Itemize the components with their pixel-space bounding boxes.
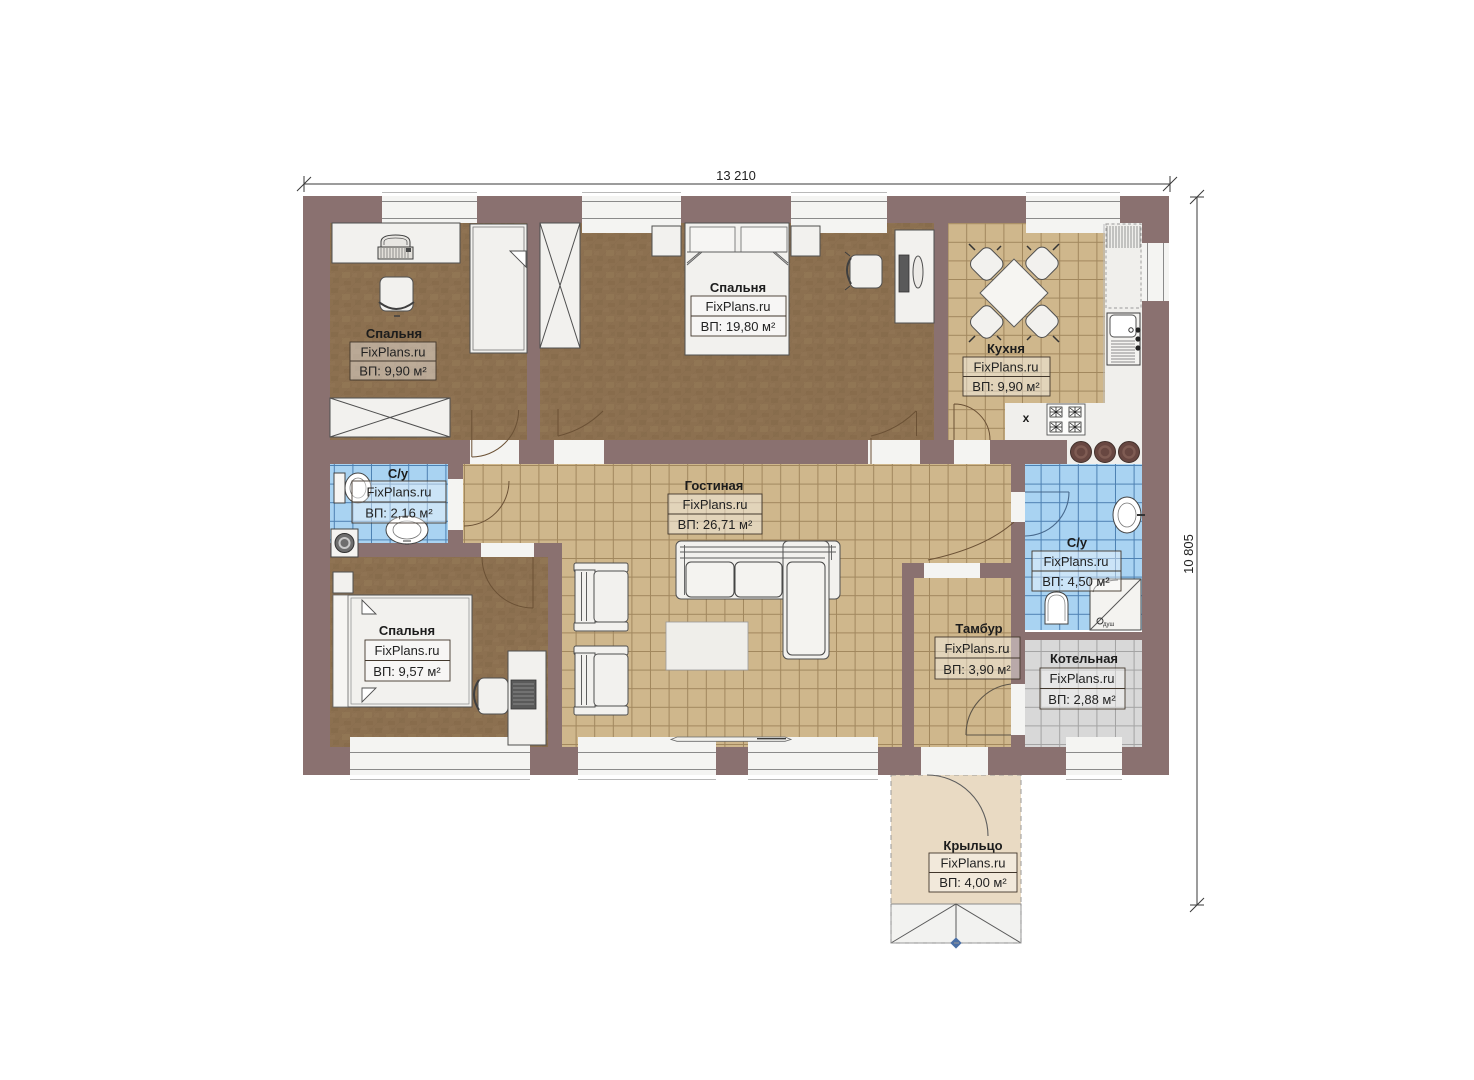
svg-text:FixPlans.ru: FixPlans.ru	[374, 643, 439, 658]
svg-text:ВП: 3,90 м²: ВП: 3,90 м²	[943, 662, 1011, 677]
svg-text:ВП: 19,80 м²: ВП: 19,80 м²	[701, 319, 776, 334]
svg-text:10 805: 10 805	[1181, 534, 1196, 574]
svg-text:душ: душ	[1103, 622, 1115, 628]
svg-text:С/у: С/у	[388, 466, 409, 481]
svg-text:Кухня: Кухня	[987, 341, 1025, 356]
svg-text:Спальня: Спальня	[366, 326, 422, 341]
svg-text:FixPlans.ru: FixPlans.ru	[360, 345, 425, 360]
svg-text:С/у: С/у	[1067, 535, 1088, 550]
svg-text:Котельная: Котельная	[1050, 651, 1118, 666]
svg-text:FixPlans.ru: FixPlans.ru	[1043, 554, 1108, 569]
svg-text:ВП: 9,57 м²: ВП: 9,57 м²	[373, 664, 441, 679]
svg-text:FixPlans.ru: FixPlans.ru	[366, 485, 431, 500]
svg-text:ВП: 2,16 м²: ВП: 2,16 м²	[365, 506, 433, 521]
svg-text:FixPlans.ru: FixPlans.ru	[1049, 671, 1114, 686]
svg-text:ВП: 4,00 м²: ВП: 4,00 м²	[939, 875, 1007, 890]
svg-text:Гостиная: Гостиная	[685, 478, 744, 493]
svg-text:FixPlans.ru: FixPlans.ru	[940, 856, 1005, 871]
svg-text:ВП: 9,90 м²: ВП: 9,90 м²	[972, 379, 1040, 394]
svg-text:FixPlans.ru: FixPlans.ru	[973, 360, 1038, 375]
svg-text:х: х	[1023, 411, 1030, 425]
svg-text:FixPlans.ru: FixPlans.ru	[682, 497, 747, 512]
svg-text:FixPlans.ru: FixPlans.ru	[705, 299, 770, 314]
svg-text:ВП: 2,88 м²: ВП: 2,88 м²	[1048, 692, 1116, 707]
svg-text:Тамбур: Тамбур	[955, 621, 1002, 636]
svg-text:Крыльцо: Крыльцо	[943, 838, 1002, 853]
svg-text:ВП: 9,90 м²: ВП: 9,90 м²	[359, 364, 427, 379]
svg-text:Спальня: Спальня	[710, 280, 766, 295]
svg-text:ВП: 4,50 м²: ВП: 4,50 м²	[1042, 574, 1110, 589]
svg-text:FixPlans.ru: FixPlans.ru	[944, 641, 1009, 656]
svg-text:13 210: 13 210	[716, 168, 756, 183]
svg-text:Спальня: Спальня	[379, 623, 435, 638]
svg-text:ВП: 26,71 м²: ВП: 26,71 м²	[678, 517, 753, 532]
